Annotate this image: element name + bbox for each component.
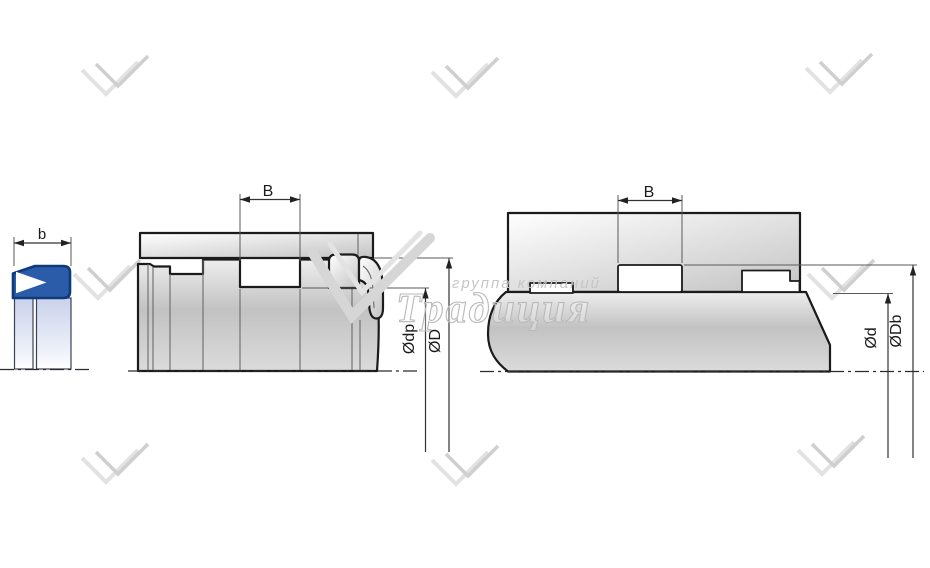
groove-main — [618, 265, 682, 292]
chevron-watermark-icon — [798, 436, 864, 474]
shaft-bar-left — [15, 298, 34, 369]
seal-installation-drawing: b — [0, 0, 930, 568]
dim-b: b — [14, 226, 71, 266]
chevron-watermark-icon — [806, 54, 872, 92]
dim-B-label: B — [263, 183, 274, 200]
dim-od-label: Ød — [863, 327, 880, 348]
dim-od-shaft: Ød — [833, 294, 893, 459]
dim-od-label: ØD — [427, 329, 444, 353]
chevron-watermark-icon — [808, 260, 874, 298]
figure-seal-cross-section: b — [0, 226, 92, 370]
chevron-watermark-icon — [82, 444, 148, 482]
dim-b-label: b — [38, 226, 46, 243]
arrowhead-up — [446, 259, 452, 269]
dim-B-label: B — [644, 184, 655, 201]
arrowhead-left — [618, 197, 628, 203]
shaft-bar-right — [37, 298, 72, 369]
arrowhead-right — [672, 197, 682, 203]
arrowhead-up — [910, 266, 916, 276]
arrowhead-left — [14, 240, 24, 246]
dim-odb-label: ØDb — [888, 314, 905, 347]
arrowhead-up — [885, 294, 891, 304]
groove-stepped — [742, 271, 800, 293]
chevron-watermark-icon — [74, 260, 140, 298]
watermark-brand-text: Традиция — [396, 286, 591, 332]
chevron-watermark-icon — [432, 58, 498, 96]
arrowhead-right — [290, 196, 300, 202]
chevron-watermark-icon — [432, 446, 498, 484]
arrowhead-right — [61, 240, 71, 246]
arrowhead-left — [240, 196, 250, 202]
chevron-watermark-icon — [82, 56, 148, 94]
technical-drawing-page: b — [0, 0, 930, 568]
seal-shaft-bars — [15, 298, 72, 369]
